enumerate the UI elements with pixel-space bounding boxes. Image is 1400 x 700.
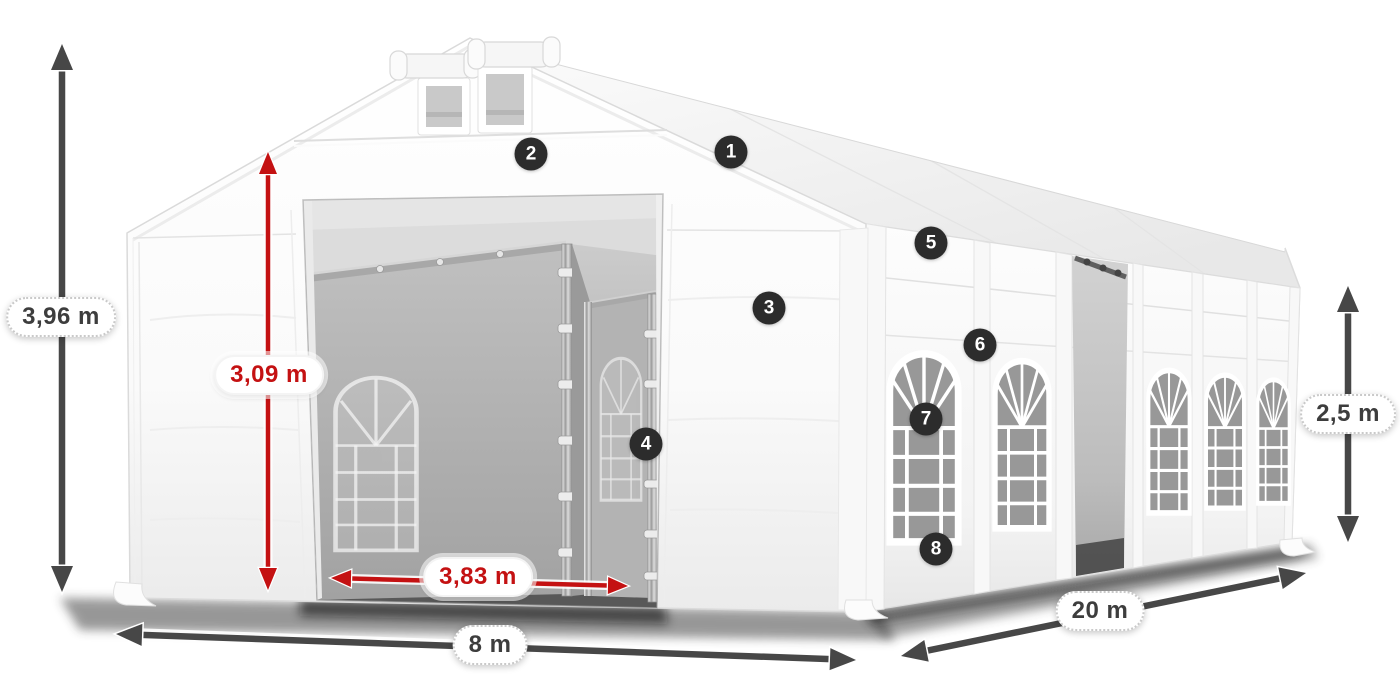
arched-window xyxy=(1148,370,1189,513)
inner-door-left xyxy=(300,242,576,600)
arched-window xyxy=(995,361,1049,528)
tent-illustration xyxy=(0,0,1400,700)
callout-badge-2: 2 xyxy=(515,138,548,171)
dimension-label-width: 8 m xyxy=(453,625,528,665)
arched-window xyxy=(890,354,958,542)
callout-badge-6: 6 xyxy=(964,329,997,362)
callout-badge-1: 1 xyxy=(715,136,748,169)
callout-badge-7: 7 xyxy=(910,403,943,436)
scaffold-pole xyxy=(562,244,572,596)
tent-dimension-diagram: 3,96 m 3,09 m 3,83 m 8 m 20 m 2,5 m 1 2 … xyxy=(0,0,1400,700)
roll-tube-icon xyxy=(390,49,481,80)
corner-strap xyxy=(838,228,868,610)
entrance-opening xyxy=(295,190,670,615)
printed-window xyxy=(336,378,417,551)
dimension-label-entrance-width: 3,83 m xyxy=(423,557,533,597)
side-door-opening xyxy=(1072,256,1128,576)
arched-window xyxy=(1258,380,1290,504)
dimension-label-total-height: 3,96 m xyxy=(6,297,116,337)
dimension-label-length: 20 m xyxy=(1056,591,1145,631)
callout-badge-3: 3 xyxy=(753,292,786,325)
dimension-label-entrance-height: 3,09 m xyxy=(214,355,324,395)
callout-badge-8: 8 xyxy=(920,533,953,566)
printed-window xyxy=(601,358,641,500)
arched-window xyxy=(1206,375,1244,508)
dimension-label-side-height: 2,5 m xyxy=(1300,394,1396,434)
roll-tube-icon xyxy=(468,37,560,69)
callout-badge-4: 4 xyxy=(630,428,663,461)
callout-badge-5: 5 xyxy=(915,227,948,260)
